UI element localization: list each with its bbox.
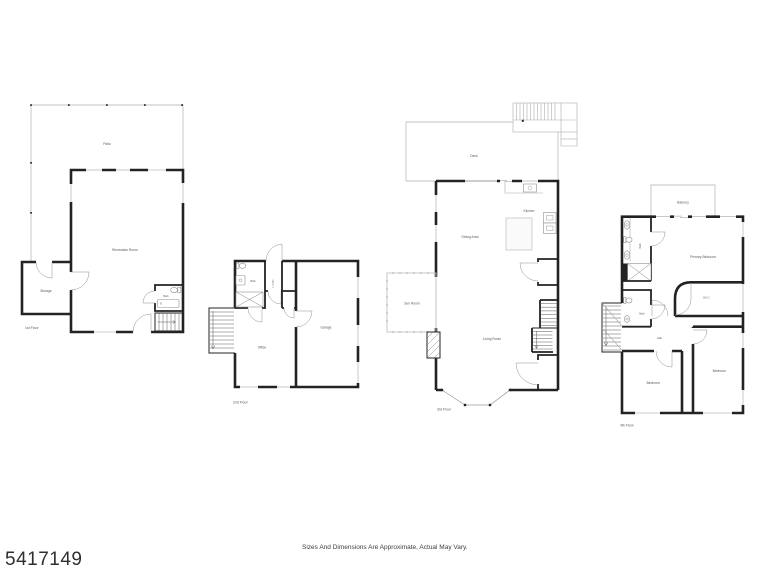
- floor-plan-4th-floor: Balcony: [596, 164, 752, 430]
- sink-icon: [624, 251, 630, 259]
- door-arc: [248, 308, 262, 322]
- door-arc: [656, 351, 672, 367]
- tub-icon: [158, 300, 180, 308]
- sink-icon: [624, 221, 630, 229]
- kitchen-sink-icon: [524, 184, 537, 192]
- disclaimer-text: Sizes And Dimensions Are Approximate, Ac…: [302, 544, 468, 551]
- toilet-icon: [239, 263, 245, 268]
- room-label-sun-room: Sun Room: [404, 302, 420, 306]
- room-label-hall: Hall: [657, 336, 662, 340]
- oven-icon: [544, 223, 557, 234]
- sink-icon: [624, 316, 629, 323]
- sink-icon: [236, 276, 245, 286]
- floor-label-1st: 1st Floor: [25, 326, 39, 330]
- bay-window: [441, 389, 511, 406]
- floor-label-4th: 4th Floor: [620, 424, 635, 428]
- bath-room: Bath: [143, 285, 183, 311]
- door-arc: [296, 311, 312, 327]
- room-label-office: Office: [258, 345, 267, 349]
- room-label-bath: Bath: [163, 295, 169, 298]
- stairs-icon: [155, 313, 183, 331]
- toilet-icon: [626, 298, 632, 303]
- room-label-bath-lower: Bath: [639, 313, 645, 316]
- primary-bath: Bath: [622, 217, 665, 281]
- toilet-icon: [237, 263, 239, 268]
- stairs-icon: [602, 303, 622, 350]
- room-label-storage: Storage: [40, 289, 52, 293]
- stairs-icon: [209, 308, 235, 353]
- exterior-stairs-icon: [513, 103, 577, 146]
- door-arc: [36, 262, 52, 278]
- door-arc: [133, 314, 151, 332]
- room-label-primary-bedroom: Primary Bedroom: [690, 255, 716, 259]
- floor-plan-sheet: Patio Recreation Room Storage: [0, 0, 768, 576]
- door-arc: [693, 330, 707, 344]
- door-arc: [516, 363, 538, 385]
- toilet-icon: [624, 237, 626, 243]
- fireplace-icon: [427, 332, 440, 358]
- chimney-block: [622, 264, 628, 282]
- room-label-balcony: Balcony: [677, 201, 689, 205]
- room-label-deck: Deck: [470, 154, 478, 158]
- floor-plan-2nd-floor: Bath Laundry Office Garage 2nd Floor: [202, 236, 368, 412]
- patio: Patio: [30, 104, 183, 262]
- door-arc: [675, 299, 691, 315]
- bath-fixtures: Bath Laundry: [236, 263, 275, 307]
- closets-and-stairs: [516, 259, 558, 389]
- room-label-dining-area: Dining Area: [461, 235, 478, 239]
- floor-label-3rd: 3rd Floor: [437, 408, 452, 412]
- door-arc: [520, 263, 538, 281]
- room-label-bedroom-right: Bedroom: [713, 369, 727, 373]
- room-label-bath: Bath: [250, 280, 256, 283]
- room-label-bath-upper: Bath: [639, 243, 642, 249]
- stove-icon: [544, 213, 557, 224]
- floor-plan-3rd-floor: Deck: [380, 92, 584, 416]
- toilet-icon: [624, 298, 626, 304]
- listing-number: 5417149: [5, 549, 82, 571]
- door-arc: [268, 291, 281, 304]
- door-arc: [651, 232, 665, 246]
- toilet-icon: [626, 237, 632, 242]
- room-label-laundry: Laundry: [272, 279, 275, 288]
- floor-plan-1st-floor: Patio Recreation Room Storage: [14, 96, 190, 338]
- door-arc: [266, 244, 282, 261]
- room-label-recreation-room: Recreation Room: [112, 248, 138, 252]
- toilet-icon: [178, 287, 181, 293]
- room-label-kitchen: Kitchen: [524, 209, 535, 213]
- floor-label-2nd: 2nd Floor: [233, 401, 249, 405]
- outline: [602, 216, 743, 413]
- room-label-garage: Garage: [321, 325, 332, 329]
- door-arc: [652, 300, 668, 316]
- sun-room: Sun Room: [386, 272, 436, 333]
- room-label-wic: W.I.C.: [703, 296, 710, 300]
- dining-table-icon: [506, 218, 532, 250]
- toilet-icon: [171, 287, 178, 292]
- dining-area: Dining Area: [461, 218, 532, 250]
- door-arc: [71, 272, 89, 290]
- wic-closet: W.I.C.: [675, 282, 743, 316]
- room-label-bedroom-left: Bedroom: [647, 381, 661, 385]
- room-label-living-room: Living Room: [483, 337, 502, 341]
- door-arc: [651, 305, 665, 319]
- hall-bath: Bath: [622, 290, 665, 327]
- deck: Deck: [406, 122, 558, 181]
- balcony: Balcony: [651, 185, 715, 216]
- room-label-patio: Patio: [103, 142, 111, 146]
- storage-room: Storage: [22, 262, 71, 314]
